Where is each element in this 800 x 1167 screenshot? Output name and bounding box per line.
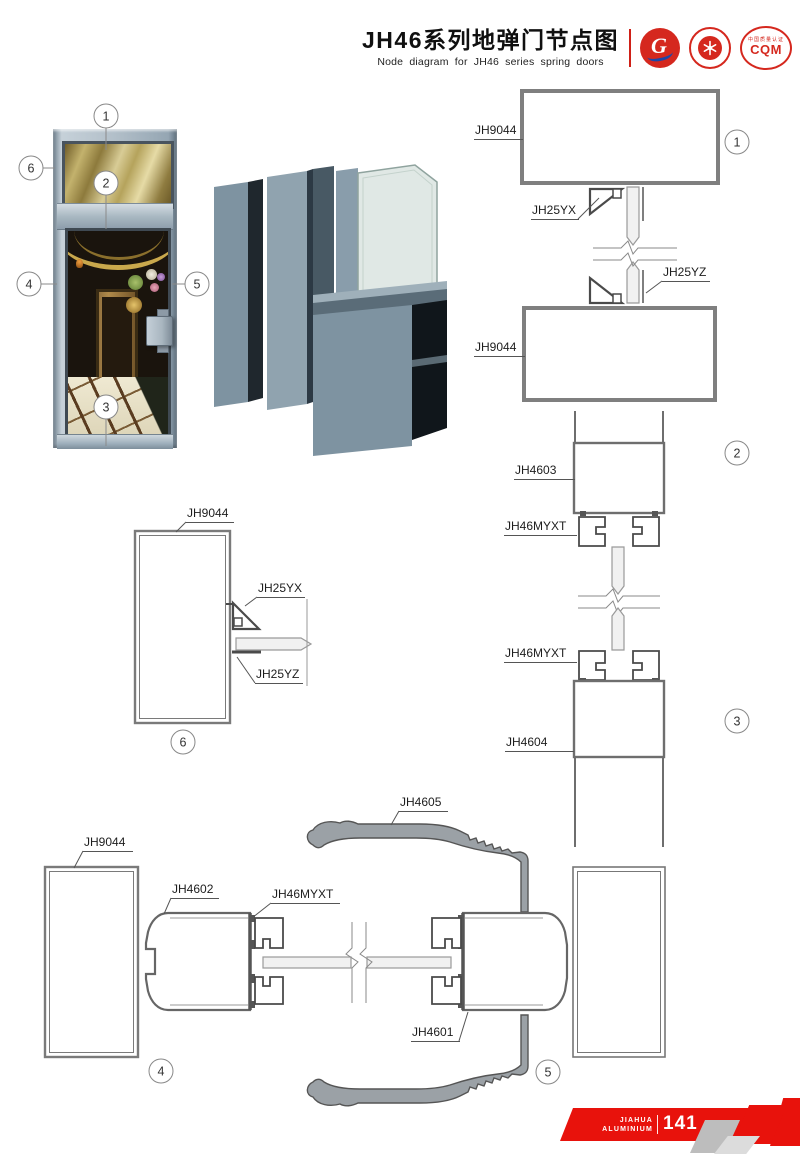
profile-label: JH25YZ <box>255 668 303 684</box>
footer-brand-line2: ALUMINIUM <box>560 1125 653 1134</box>
detail-callout-6: 6 <box>171 730 196 755</box>
detail-1-linework <box>522 91 718 400</box>
detail-3-linework <box>574 651 664 847</box>
profile-label: JH46MYXT <box>504 520 577 536</box>
profile-label: JH9044 <box>474 124 523 140</box>
profile-label: JH46MYXT <box>271 888 340 904</box>
profile-label: JH4602 <box>171 883 219 899</box>
detail-callout-1: 1 <box>725 130 750 155</box>
door-callout-2: 2 <box>94 171 119 196</box>
door-callout-3: 3 <box>94 395 119 420</box>
profile-label: JH4605 <box>399 796 448 812</box>
detail-callout-2: 2 <box>725 441 750 466</box>
door-callout-5: 5 <box>185 272 210 297</box>
door-callout-6: 6 <box>19 156 44 181</box>
profile-label: JH4601 <box>411 1026 460 1042</box>
profile-label: JH25YZ <box>662 266 710 282</box>
profile-label: JH4603 <box>514 464 575 480</box>
door-callout-4: 4 <box>17 272 42 297</box>
page-number: 141 <box>663 1113 698 1135</box>
right-frame-section <box>573 867 665 1057</box>
footer-brand: JIAHUA ALUMINIUM <box>560 1116 653 1134</box>
profile-label: JH4604 <box>505 736 574 752</box>
technical-drawing-svg <box>0 0 800 1167</box>
detail-6-linework <box>135 522 311 723</box>
detail-4-linework <box>45 851 451 1057</box>
detail-2-linework <box>574 411 664 650</box>
profile-label: JH9044 <box>186 507 234 523</box>
profile-label: JH9044 <box>474 341 525 357</box>
footer-divider <box>657 1115 658 1134</box>
detail-callout-3: 3 <box>725 709 750 734</box>
detail-callout-5: 5 <box>536 1060 561 1085</box>
detail-callout-4: 4 <box>149 1059 174 1084</box>
profile-3d-render <box>214 165 447 456</box>
profile-label: JH9044 <box>83 836 133 852</box>
profile-label: JH25YX <box>257 582 305 598</box>
door-callout-1: 1 <box>94 104 119 129</box>
profile-label: JH25YX <box>531 204 579 220</box>
catalog-page: JH46系列地弹门节点图 Node diagram for JH46 serie… <box>0 0 800 1167</box>
footer-brand-line1: JIAHUA <box>560 1116 653 1125</box>
profile-label: JH46MYXT <box>504 647 577 663</box>
